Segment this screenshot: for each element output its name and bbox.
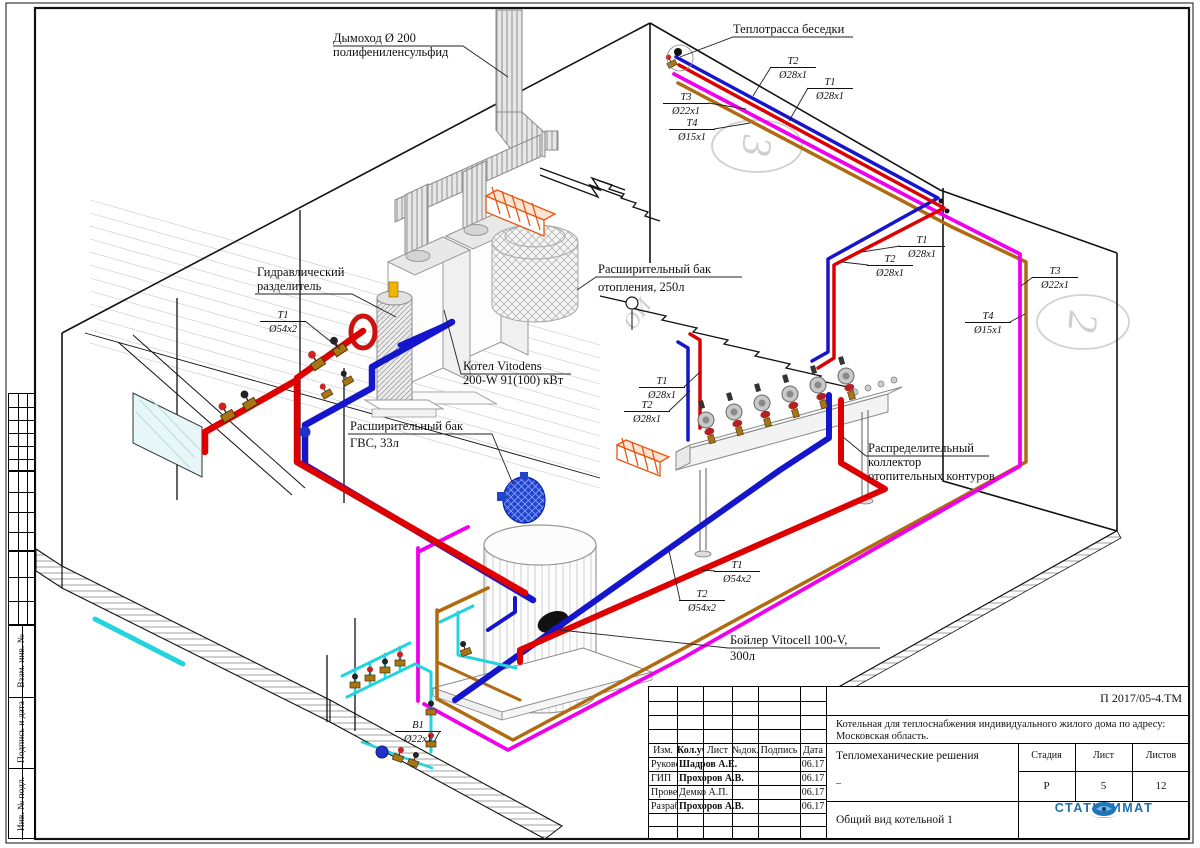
svg-text:Ø15x1: Ø15x1	[973, 325, 1002, 336]
separator-label: Гидравлический разделитель	[257, 265, 345, 293]
manifold-label: Распределительный коллектор отопительных…	[868, 441, 995, 483]
svg-text:Ø15x1: Ø15x1	[677, 132, 706, 143]
row-role: ГИП	[651, 772, 678, 786]
blue-handwheel	[300, 427, 311, 438]
wall-break-symbol	[540, 168, 625, 197]
row-name: Прохоров А.В.	[679, 772, 757, 786]
svg-text:Т1: Т1	[731, 560, 742, 571]
pipe-tag: Т3Ø22x1	[1032, 266, 1078, 291]
svg-text:Т4: Т4	[686, 118, 698, 129]
exp-tank-heating-label: Расширительный бак отопления, 250л	[598, 262, 712, 294]
svg-text:Т1: Т1	[916, 235, 927, 246]
svg-text:отопления, 250л: отопления, 250л	[598, 280, 684, 294]
svg-text:Ø28x1: Ø28x1	[875, 268, 904, 279]
row-role: Разработал	[651, 800, 678, 814]
pipe-tag: Т1Ø28x1	[639, 376, 685, 401]
svg-text:Котел Vitodens: Котел Vitodens	[463, 359, 542, 373]
svg-text:Т1: Т1	[656, 376, 667, 387]
row-name: Демко А.П.	[679, 786, 757, 800]
window	[133, 393, 202, 477]
side-label-podpis: Подпись и дата	[17, 697, 27, 767]
row-date: 06.17	[800, 758, 826, 772]
stage-value: Р	[1018, 779, 1075, 793]
zone-2-mark: 2	[1058, 309, 1106, 334]
svg-text:Ø28x1: Ø28x1	[632, 414, 661, 425]
svg-text:Гидравлический: Гидравлический	[257, 265, 345, 279]
svg-text:Т2: Т2	[787, 56, 799, 67]
svg-text:Дымоход Ø 200: Дымоход Ø 200	[333, 31, 416, 45]
company-logo: СТАТКЛИМАТ	[1018, 801, 1190, 840]
svg-text:Т2: Т2	[884, 254, 896, 265]
project-line2: Московская область.	[836, 730, 1186, 744]
svg-text:Ø28x1: Ø28x1	[778, 70, 807, 81]
sheets-value: 12	[1132, 779, 1190, 793]
pipe-tag: Т1Ø28x1	[807, 77, 853, 102]
doc-number: П 2017/05-4.ТМ	[826, 691, 1182, 705]
svg-text:Ø54x2: Ø54x2	[722, 574, 752, 585]
svg-text:Т3: Т3	[680, 92, 691, 103]
side-label-vzam: Взам. инв. №	[17, 626, 27, 696]
svg-text:Т1: Т1	[824, 77, 835, 88]
svg-text:Ø54x2: Ø54x2	[268, 324, 298, 335]
svg-text:Т4: Т4	[982, 311, 994, 322]
equipment-labels: Дымоход Ø 200 полифениленсульфид Теплотр…	[257, 22, 995, 663]
svg-text:Расширительный бак: Расширительный бак	[350, 419, 464, 433]
pipe-tag: Т2Ø28x1	[867, 254, 913, 279]
svg-text:ГВС, 33л: ГВС, 33л	[350, 436, 399, 450]
pipe-tag: Т2Ø28x1	[770, 56, 816, 81]
small-pump	[376, 746, 388, 758]
svg-text:разделитель: разделитель	[257, 279, 322, 293]
logo-mark	[1018, 801, 1190, 825]
sheets-label: Листов	[1132, 749, 1190, 763]
col-dok: №док.	[732, 744, 758, 758]
svg-text:Бойлер Vitocell 100-V,: Бойлер Vitocell 100-V,	[730, 633, 847, 647]
svg-text:Ø22x1: Ø22x1	[403, 734, 432, 745]
side-label-inv: Инв. № подл.	[17, 769, 27, 839]
drawing-sheet: 3 2 ОИ	[0, 0, 1200, 848]
row-date: 06.17	[800, 772, 826, 786]
svg-text:Т2: Т2	[696, 589, 708, 600]
drawing-title: Общий вид котельной 1	[836, 813, 1016, 827]
svg-text:Ø28x1: Ø28x1	[907, 249, 936, 260]
svg-text:Ø28x1: Ø28x1	[815, 91, 844, 102]
svg-text:В1: В1	[412, 720, 424, 731]
teplotrassa-label: Теплотрасса беседки	[733, 22, 845, 36]
air-vent-cap	[389, 282, 398, 297]
pipe-tag: Т1Ø54x2	[260, 310, 306, 335]
svg-text:Т3: Т3	[1049, 266, 1060, 277]
air-vent-symbol	[626, 297, 638, 309]
expansion-tank-250	[492, 225, 578, 322]
row-role: Проверил	[651, 786, 678, 800]
row-name: Шадров А.Е.	[679, 758, 757, 772]
section-title: Тепломеханические решения	[836, 749, 1016, 763]
stage-label: Стадия	[1018, 749, 1075, 763]
teplotrassa-elbow	[674, 48, 682, 56]
pipe-tag: Т2Ø28x1	[624, 400, 670, 425]
svg-text:полифениленсульфид: полифениленсульфид	[333, 45, 449, 59]
pipe-tag: Т4Ø15x1	[669, 118, 715, 143]
svg-text:300л: 300л	[730, 649, 755, 663]
svg-text:Ø22x1: Ø22x1	[1040, 280, 1069, 291]
sheet-label: Лист	[1075, 749, 1132, 763]
row-name: Прохоров А.В.	[679, 800, 757, 814]
col-podpis: Подпись	[758, 744, 800, 758]
sheet-value: 5	[1075, 779, 1132, 793]
section-sub: –	[836, 777, 1016, 791]
svg-text:Ø22x1: Ø22x1	[671, 106, 700, 117]
svg-text:Распределительный: Распределительный	[868, 441, 974, 455]
col-list: Лист	[703, 744, 732, 758]
row-role: Руководит.	[651, 758, 678, 772]
svg-text:Т2: Т2	[641, 400, 653, 411]
boiler-label: Котел Vitodens 200-W 91(100) кВт	[463, 359, 564, 387]
title-block: П 2017/05-4.ТМ Котельная для теплоснабже…	[648, 686, 1189, 839]
col-koluch: Кол.уч.	[677, 744, 703, 758]
pipe-tag: Т1Ø28x1	[899, 235, 945, 260]
pipe-tag: Т4Ø15x1	[965, 311, 1011, 336]
chimney-label: Дымоход Ø 200 полифениленсульфид	[333, 31, 449, 59]
svg-text:200-W 91(100) кВт: 200-W 91(100) кВт	[463, 373, 564, 387]
misc-watermark: ОИ	[618, 293, 657, 334]
pipe-tag: Т2Ø54x2	[679, 589, 725, 614]
zone-3-mark: 3	[732, 132, 780, 158]
row-date: 06.17	[800, 786, 826, 800]
col-data: Дата	[800, 744, 826, 758]
svg-text:отопительных контуров: отопительных контуров	[868, 469, 995, 483]
row-date: 06.17	[800, 800, 826, 814]
dhw-expansion-tank	[497, 472, 545, 523]
svg-text:Расширительный бак: Расширительный бак	[598, 262, 712, 276]
svg-text:коллектор: коллектор	[868, 455, 921, 469]
svg-text:Т1: Т1	[277, 310, 288, 321]
svg-text:Ø54x2: Ø54x2	[687, 603, 717, 614]
col-izm: Изм.	[649, 744, 677, 758]
